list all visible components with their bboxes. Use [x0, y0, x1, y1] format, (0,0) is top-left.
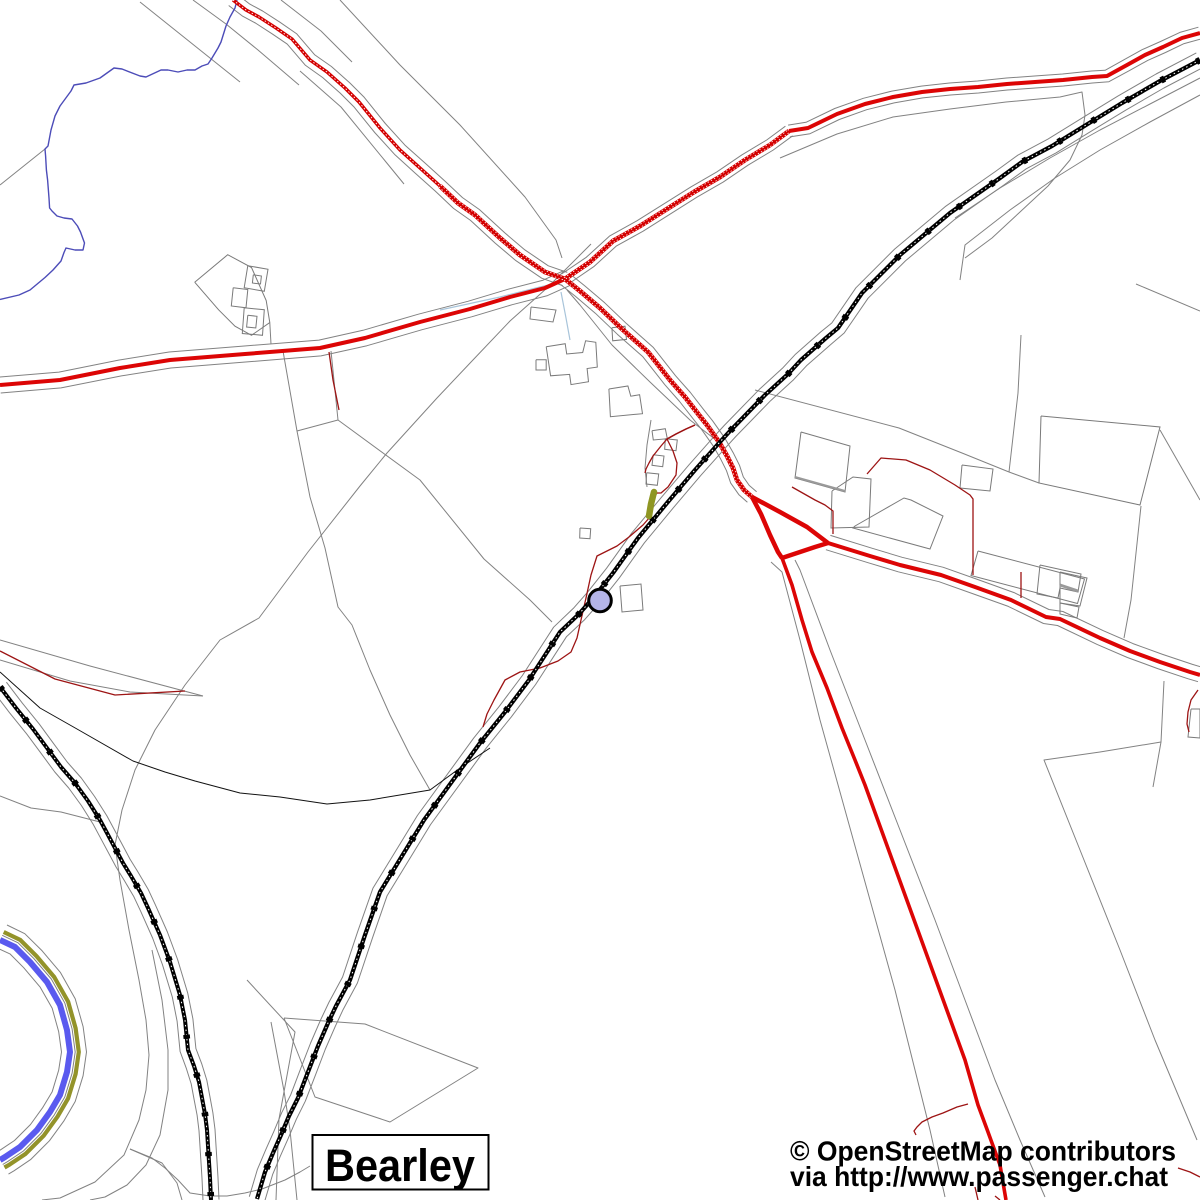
svg-text:Bearley: Bearley — [325, 1140, 475, 1191]
svg-text:via http://www.passenger.chat: via http://www.passenger.chat — [790, 1161, 1168, 1192]
